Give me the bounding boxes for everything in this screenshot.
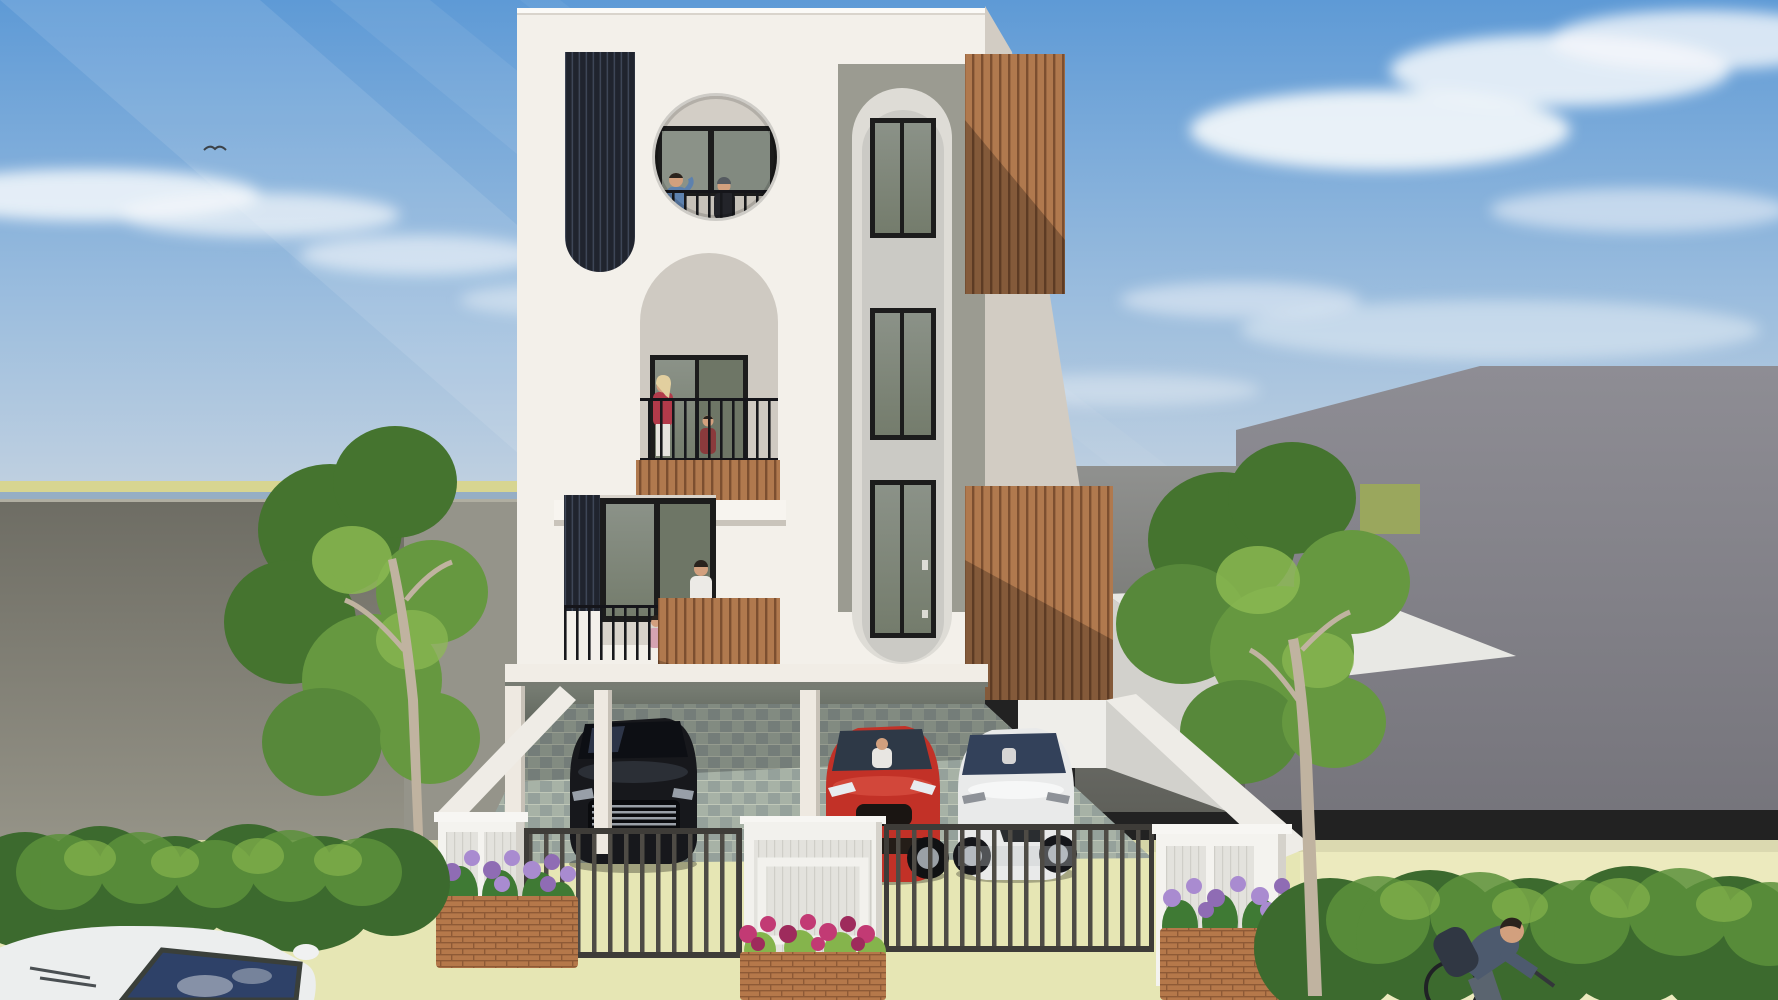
center-planter xyxy=(739,914,886,1000)
carport-fascia xyxy=(505,664,988,682)
strip-window-bottom xyxy=(870,480,936,638)
car-mirror xyxy=(293,944,319,960)
dark-slat-screen-lower xyxy=(564,495,600,611)
arch-balcony xyxy=(636,253,780,505)
circle-balcony xyxy=(655,96,777,219)
upper-wood-screen xyxy=(965,54,1065,294)
render-canvas xyxy=(0,0,1778,1000)
dark-slat-screen-top xyxy=(565,52,635,272)
center-brick-box xyxy=(740,952,886,1000)
scene-svg xyxy=(0,0,1778,1000)
right-gate xyxy=(884,824,1154,952)
strip-window-top xyxy=(870,118,936,238)
main-building xyxy=(505,6,1113,712)
strip-window-middle xyxy=(870,308,936,440)
left-brick-box xyxy=(436,896,578,968)
